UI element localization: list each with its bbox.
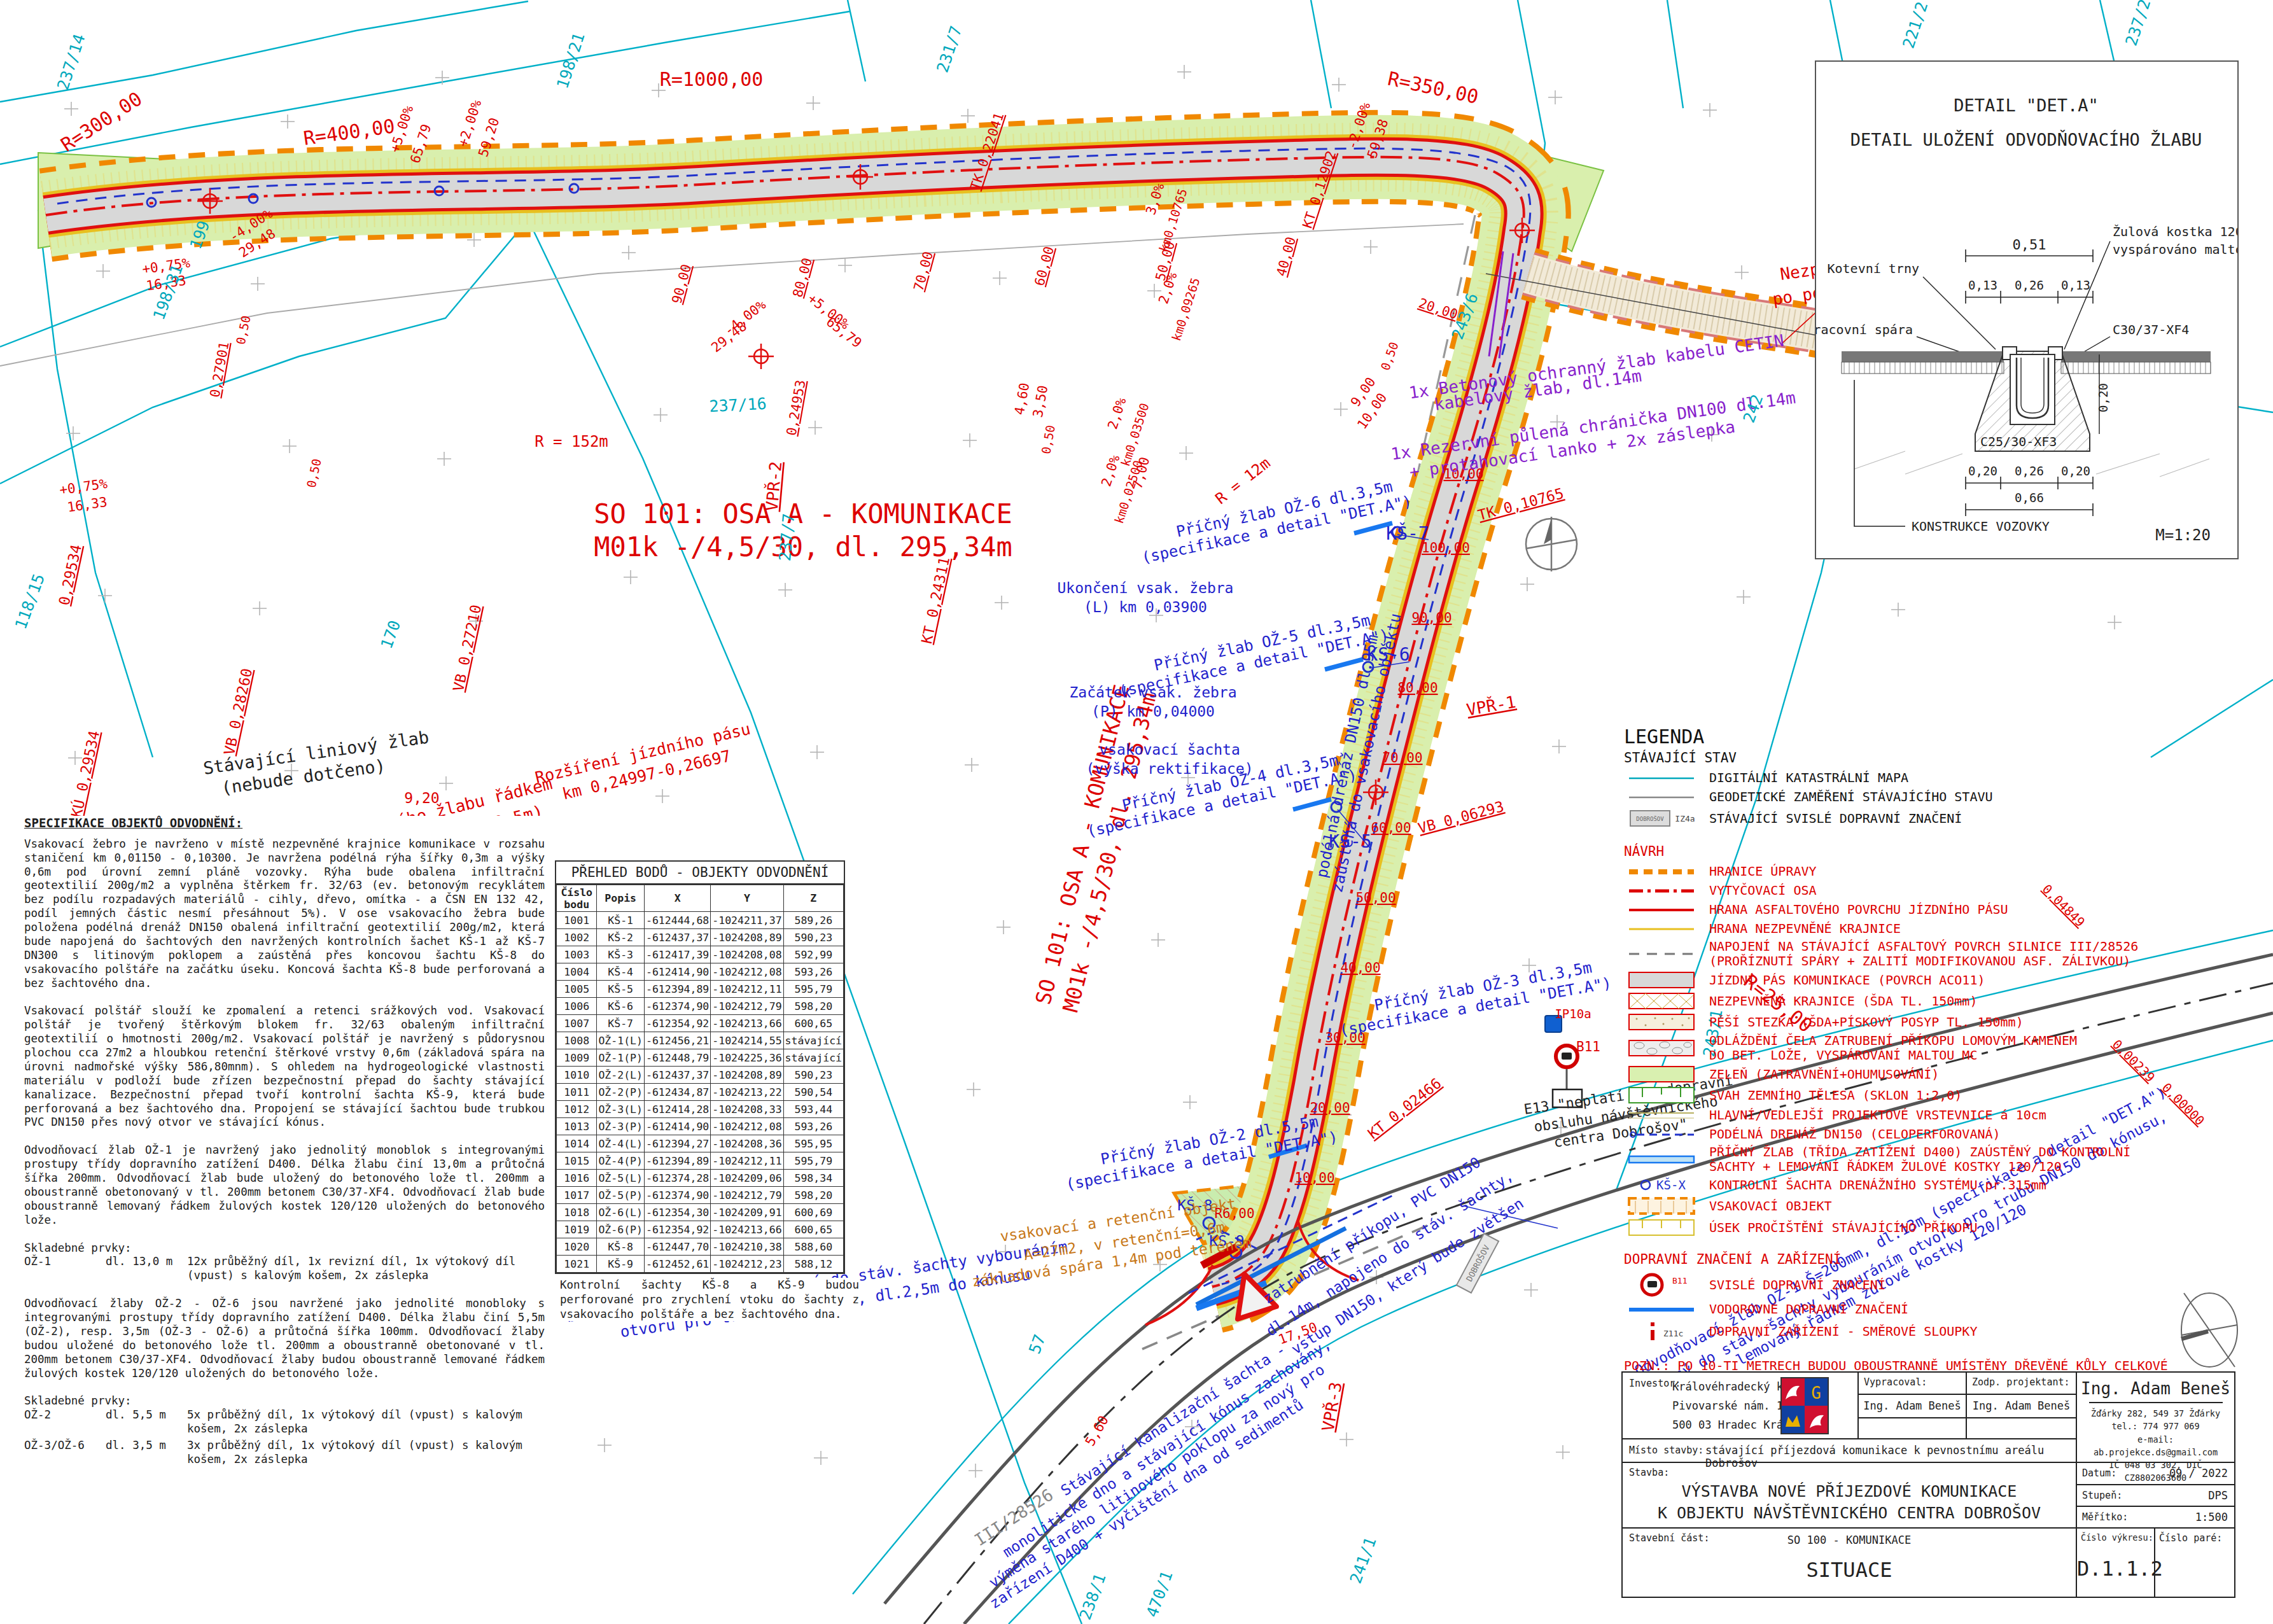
legend-item-label: VODOROVNÉ DOPRAVNÍ ZNAČENÍ xyxy=(1709,1302,1908,1317)
legend-item-label: KONTROLNÍ ŠACHTA DRENÁŽNÍHO SYSTÉMU pr.3… xyxy=(1709,1178,2046,1193)
table-cell: -1024213,66 xyxy=(711,1221,783,1238)
survey-cross xyxy=(1364,240,1378,254)
survey-cross xyxy=(598,1438,612,1452)
points-table-note: Kontrolní šachty KŠ-8 a KŠ-9 budou perfo… xyxy=(560,1278,859,1321)
legend-item: B11SVISLÉ DOPRAVNÍ ZNAČENÍ xyxy=(1624,1271,2268,1299)
annotation-text: (L) km 0,03900 xyxy=(1084,599,1207,615)
table-row: 1015OŽ-4(P)-612394,89-1024212,11595,79 xyxy=(557,1152,844,1170)
table-cell: 600,69 xyxy=(783,1204,843,1221)
table-cell: 1006 xyxy=(557,998,597,1015)
table-cell: -1024208,89 xyxy=(711,1067,783,1084)
survey-cross xyxy=(1548,90,1562,104)
table-cell: -612374,90 xyxy=(644,998,710,1015)
annotation-text: vsakovací šachta xyxy=(1099,741,1240,758)
survey-cross xyxy=(1332,78,1346,92)
cyan-line-icon xyxy=(1624,770,1699,787)
svg-text:Z11c: Z11c xyxy=(1663,1329,1683,1338)
survey-cross xyxy=(1737,590,1751,604)
survey-cross xyxy=(1520,577,1534,591)
annotation-text: VPŘ-3 xyxy=(1318,1380,1346,1432)
legend-item: HRANA NEZPEVNĚNÉ KRAJNICE xyxy=(1624,920,2268,937)
blue-channel-icon xyxy=(1624,1151,1699,1168)
label-zulova-1: Žulová kostka 120/120, xyxy=(2113,224,2237,239)
table-cell: -612444,68 xyxy=(644,912,710,929)
cislo-value: D.1.1.2 xyxy=(2077,1557,2154,1581)
table-header: Z xyxy=(783,885,843,912)
annotation-text: VB 0,27210 xyxy=(450,603,484,693)
dim-b026: 0,26 xyxy=(2015,464,2044,478)
dim-b020a: 0,20 xyxy=(1968,464,1997,478)
annotation-text: 80,00 xyxy=(790,256,815,299)
coat-of-arms: G xyxy=(1780,1377,1829,1434)
survey-cross xyxy=(1177,65,1191,79)
survey-cross xyxy=(814,1451,828,1465)
stavba-line1: VÝSTAVBA NOVÉ PŘÍJEZDOVÉ KOMUNIKACE xyxy=(1623,1481,2076,1502)
legend-item: PĚŠÍ STEZKA (ŠDA+PÍSKOVÝ POSYP TL. 150mm… xyxy=(1624,1012,2268,1032)
table-cell: 1013 xyxy=(557,1118,597,1135)
table-row: 1001KŠ-1-612444,68-1024211,37589,26 xyxy=(557,912,844,929)
survey-cross xyxy=(1552,739,1566,753)
dim-b066: 0,66 xyxy=(2015,491,2044,505)
annotation-text: 0,50 xyxy=(304,458,324,489)
table-cell: 590,23 xyxy=(783,1067,843,1084)
table-cell: -612434,87 xyxy=(644,1084,710,1101)
svg-text:IZ4a: IZ4a xyxy=(1675,814,1695,823)
table-cell: 1011 xyxy=(557,1084,597,1101)
legend-item: ÚSEK PROČIŠTĚNÍ STÁVAJÍCÍHO PŘÍKOPU xyxy=(1624,1218,2268,1237)
table-header: Číslo bodu xyxy=(557,885,597,912)
annotation-text: R=300,00 xyxy=(57,87,146,156)
annotation-text: R = 152m xyxy=(535,433,608,451)
spec-paragraph: Vsakovací žebro je navrženo v místě nezp… xyxy=(24,837,545,991)
table-cell: -612448,79 xyxy=(644,1049,710,1067)
legend-item-label: HRANA ASFALTOVÉHO POVRCHU JÍZDNÍHO PÁSU xyxy=(1709,902,2008,917)
annotation-text: 237/14 xyxy=(53,32,88,92)
table-cell: -1024211,37 xyxy=(711,912,783,929)
vypracoval-value: Ing. Adam Beneš xyxy=(1859,1399,1966,1412)
survey-cross xyxy=(1339,1432,1353,1446)
survey-cross xyxy=(1183,1095,1197,1109)
legend-title: LEGENDA xyxy=(1624,725,2268,748)
annotation-text: IP10a xyxy=(1555,1007,1591,1021)
legend-item-label: DOPRAVNÍ ZAŘÍZENÍ - SMĚROVÉ SLOUPKY xyxy=(1709,1324,1977,1339)
thin-lines-icon xyxy=(1624,1107,1699,1124)
annotation-text: SO 101: OSA A - KOMUNIKACE xyxy=(594,498,1012,529)
table-cell: KŠ-1 xyxy=(597,912,645,929)
dim-013a: 0,13 xyxy=(1968,278,1997,292)
annotation-text: 237/16 xyxy=(709,395,767,416)
legend-item: VSAKOVACÍ OBJEKT xyxy=(1624,1196,2268,1216)
orange-dash-icon xyxy=(1624,864,1699,880)
table-cell: 600,65 xyxy=(783,1221,843,1238)
pare-cell: Číslo paré: xyxy=(2154,1527,2234,1597)
legend-item: Z11cDOPRAVNÍ ZAŘÍZENÍ - SMĚROVÉ SLOUPKY xyxy=(1624,1320,2268,1343)
survey-cross xyxy=(1891,603,1905,617)
table-cell: -1024208,36 xyxy=(711,1135,783,1152)
legend-item-label: GEODETICKÉ ZAMĚŘENÍ STÁVAJÍCÍHO STAVU xyxy=(1709,790,1993,804)
table-cell: -612417,39 xyxy=(644,946,710,963)
table-cell: 1018 xyxy=(557,1204,597,1221)
table-row: 1021KŠ-9-612452,61-1024212,23588,12 xyxy=(557,1256,844,1273)
table-cell: 1021 xyxy=(557,1256,597,1273)
table-cell: -612354,92 xyxy=(644,1221,710,1238)
spec-subheading: Skladebné prvky: xyxy=(24,1394,545,1408)
dim-020v: 0,20 xyxy=(2096,383,2110,412)
table-cell: KŠ-5 xyxy=(597,981,645,998)
survey-cross xyxy=(1524,1283,1538,1297)
svg-text:KŠ-X: KŠ-X xyxy=(1656,1177,1686,1192)
annotation-text: 57 xyxy=(1025,1332,1049,1356)
table-cell: 593,26 xyxy=(783,1118,843,1135)
table-cell: KŠ-9 xyxy=(597,1256,645,1273)
table-row: 1009OŽ-1(P)-612448,79-1024225,36stávajíc… xyxy=(557,1049,844,1067)
table-cell: -612394,27 xyxy=(644,1135,710,1152)
survey-cross xyxy=(1703,103,1717,117)
spec-subheading: Skladebné prvky: xyxy=(24,1242,545,1256)
meritko-label: Měřítko: xyxy=(2082,1511,2128,1523)
stavba-cell: Stavba: VÝSTAVBA NOVÉ PŘÍJEZDOVÉ KOMUNIK… xyxy=(1623,1462,2076,1527)
spec-component-row: OŽ-1dl. 13,0 m12x průběžný díl, 1x reviz… xyxy=(24,1255,545,1283)
table-cell: OŽ-1(P) xyxy=(597,1049,645,1067)
cast-value: SO 100 - KOMUNIKACE xyxy=(1623,1534,2076,1546)
survey-cross xyxy=(961,109,975,123)
zodp-cell: Zodp. projektant: Ing. Adam Beneš xyxy=(1966,1373,2076,1438)
legend-item: KŠ-XKONTROLNÍ ŠACHTA DRENÁŽNÍHO SYSTÉMU … xyxy=(1624,1176,2268,1194)
survey-cross xyxy=(1556,1445,1570,1459)
annotation-text: 80,00 xyxy=(1397,680,1437,696)
table-row: 1014OŽ-4(L)-612394,27-1024208,36595,95 xyxy=(557,1135,844,1152)
table-cell: -1024212,08 xyxy=(711,1118,783,1135)
stavba-label: Stavba: xyxy=(1629,1467,1669,1478)
table-row: 1019OŽ-6(P)-612354,92-1024213,66600,65 xyxy=(557,1221,844,1238)
survey-cross xyxy=(437,452,451,466)
annotation-text: 0,50 xyxy=(1039,424,1058,455)
svg-text:DOBROŠOV: DOBROŠOV xyxy=(1636,815,1664,822)
table-cell: -612354,92 xyxy=(644,1015,710,1032)
detail-title: DETAIL "DET.A" xyxy=(1954,95,2099,115)
legend-item-label: ODLÁŽDĚNÍ ČELA ZATRUBENÍ PŘÍKOPU LOMOVÝM… xyxy=(1709,1033,2077,1063)
legend-item: NEZPEVNĚNÁ KRAJNICE (ŠDA TL. 150mm) xyxy=(1624,991,2268,1011)
annotation-text: B11 xyxy=(1576,1039,1600,1054)
table-cell: -612452,61 xyxy=(644,1256,710,1273)
table-cell: -1024212,23 xyxy=(711,1256,783,1273)
annotation-text: 237/2 xyxy=(2122,0,2154,48)
vykres-nazev: SITUACE xyxy=(1623,1558,2076,1582)
table-cell: 593,26 xyxy=(783,963,843,981)
table-row: 1004KŠ-4-612414,90-1024212,08593,26 xyxy=(557,963,844,981)
table-cell: -1024209,91 xyxy=(711,1204,783,1221)
annotation-text: 5,60 xyxy=(1082,1413,1112,1449)
legend-item: DIGITÁLNÍ KATASTRÁLNÍ MAPA xyxy=(1624,769,2268,787)
table-cell: -1024214,55 xyxy=(711,1032,783,1049)
alignment-markers xyxy=(197,164,1535,805)
post-z11c-icon: Z11c xyxy=(1624,1320,1699,1343)
annotation-text: VPŘ-1 xyxy=(1465,692,1517,720)
annotation-text: 170 xyxy=(377,618,405,651)
table-cell: -1024225,36 xyxy=(711,1049,783,1067)
table-row: 1008OŽ-1(L)-612456,21-1024214,55stávajíc… xyxy=(557,1032,844,1049)
table-cell: -1024213,66 xyxy=(711,1015,783,1032)
table-cell: -612437,37 xyxy=(644,1067,710,1084)
meritko-cell: Měřítko: 1:500 xyxy=(2076,1506,2234,1527)
table-row: 1012OŽ-3(L)-612414,28-1024208,33593,44 xyxy=(557,1101,844,1118)
annotation-text: 241/1 xyxy=(1346,1535,1380,1586)
survey-cross xyxy=(655,789,669,803)
investor-cell: Investor: Královéhradecký kraj Pivovarsk… xyxy=(1623,1373,1857,1438)
table-cell: OŽ-4(L) xyxy=(597,1135,645,1152)
cislo-cell: Číslo výkresu: D.1.1.2 xyxy=(2076,1527,2154,1597)
table-cell: stávající xyxy=(783,1049,843,1067)
spec-paragraph: Vsakovací polštář slouží ke zpomalení a … xyxy=(24,1004,545,1130)
table-cell: OŽ-1(L) xyxy=(597,1032,645,1049)
table-cell: -612437,37 xyxy=(644,929,710,946)
table-cell: OŽ-4(P) xyxy=(597,1152,645,1170)
table-cell: -612374,90 xyxy=(644,1187,710,1204)
table-cell: 598,20 xyxy=(783,1187,843,1204)
annotation-text: 231/7 xyxy=(933,24,965,75)
swatch-cross-icon xyxy=(1624,991,1699,1011)
legend-item-label: SVISLÉ DOPRAVNÍ ZNAČENÍ xyxy=(1709,1278,1885,1292)
table-cell: -612394,89 xyxy=(644,981,710,998)
legend-item-label: HLAVNÍ/VEDLEJŠÍ PROJEKTOVÉ VRSTEVNICE á … xyxy=(1709,1108,2046,1123)
table-cell: stávající xyxy=(783,1032,843,1049)
table-cell: -1024208,08 xyxy=(711,946,783,963)
table-row: 1005KŠ-5-612394,89-1024212,11595,79 xyxy=(557,981,844,998)
annotation-text: R=350,00 xyxy=(1386,67,1481,108)
survey-cross xyxy=(808,421,822,435)
legend-item-label: STÁVAJÍCÍ SVISLÉ DOPRAVNÍ ZNAČENÍ xyxy=(1709,811,1962,826)
table-cell: 593,44 xyxy=(783,1101,843,1118)
pare-label: Číslo paré: xyxy=(2159,1532,2222,1544)
legend: LEGENDA STÁVAJÍCÍ STAV DIGITÁLNÍ KATASTR… xyxy=(1624,725,2268,1431)
red-line-icon xyxy=(1624,902,1699,918)
gray-dash-icon xyxy=(1624,946,1699,962)
legend-item: SVAH ZEMNÍHO TĚLESA (SKLON 1:2,0) xyxy=(1624,1086,2268,1105)
legend-item: HRANA ASFALTOVÉHO POVRCHU JÍZDNÍHO PÁSU xyxy=(1624,901,2268,918)
annotation-text: KT 0,24311 xyxy=(918,556,953,645)
survey-cross xyxy=(64,102,78,116)
annotation-text: 60,00 xyxy=(1032,245,1057,288)
legend-item: GEODETICKÉ ZAMĚŘENÍ STÁVAJÍCÍHO STAVU xyxy=(1624,788,2268,806)
table-row: 1020KŠ-8-612447,70-1024210,38588,60 xyxy=(557,1238,844,1256)
annotation-text: 2,0% xyxy=(1105,396,1130,431)
legend-item: VYTYČOVACÍ OSA xyxy=(1624,882,2268,899)
table-cell: -1024212,79 xyxy=(711,1187,783,1204)
legend-signs-head: DOPRAVNÍ ZNAČENÍ A ZAŘÍZENÍ xyxy=(1624,1252,2268,1267)
survey-cross xyxy=(993,271,1007,285)
legend-item-label: PŘÍČNÝ ŽLAB (TŘÍDA ZATÍŽENÍ D400) ZAÚSTĚ… xyxy=(1709,1145,2130,1174)
detail-scale: M=1:20 xyxy=(2155,526,2211,544)
dim-051: 0,51 xyxy=(2013,237,2046,253)
svg-text:G: G xyxy=(1811,1383,1821,1403)
survey-cross xyxy=(98,589,112,603)
table-cell: OŽ-2(L) xyxy=(597,1067,645,1084)
annotation-text: M01k -/4,5/30, dl. 295,34m xyxy=(594,531,1012,563)
firm-cell: Ing. Adam Beneš Žďárky 282, 549 37 Žďárk… xyxy=(2076,1373,2234,1462)
table-cell: -612394,89 xyxy=(644,1152,710,1170)
legend-item: PŘÍČNÝ ŽLAB (TŘÍDA ZATÍŽENÍ D400) ZAÚSTĚ… xyxy=(1624,1145,2268,1174)
table-header: X xyxy=(644,885,710,912)
table-cell: KŠ-4 xyxy=(597,963,645,981)
legend-item: DOBROŠOVIZ4aSTÁVAJÍCÍ SVISLÉ DOPRAVNÍ ZN… xyxy=(1624,808,2268,829)
spec-text-block: SPECIFIKACE OBJEKTŮ ODVODNĚNÍ: Vsakovací… xyxy=(24,816,545,1481)
legend-item: HRANICE ÚPRAVY xyxy=(1624,863,2268,880)
legend-item: VODOROVNÉ DOPRAVNÍ ZNAČENÍ xyxy=(1624,1301,2268,1318)
table-cell: -612374,28 xyxy=(644,1170,710,1187)
annotation-text: výměna starého litinového poklopu za nov… xyxy=(986,1361,1327,1591)
survey-cross xyxy=(251,277,265,291)
legend-item: ZELEŇ (ZATRAVNĚNÍ+OHUMUSOVÁNÍ) xyxy=(1624,1065,2268,1084)
survey-cross xyxy=(963,433,977,447)
table-cell: -1024212,79 xyxy=(711,998,783,1015)
table-row: 1013OŽ-3(P)-612414,90-1024212,08593,26 xyxy=(557,1118,844,1135)
annotation-text: 20,00 xyxy=(1416,295,1460,322)
spec-component-row: OŽ-2dl. 5,5 m5x průběžný díl, 1x výtokov… xyxy=(24,1408,545,1436)
table-cell: -612414,28 xyxy=(644,1101,710,1118)
survey-cross xyxy=(253,601,267,615)
annotation-text: KT 0,02466 xyxy=(1365,1075,1444,1142)
legend-item: HLAVNÍ/VEDLEJŠÍ PROJEKTOVÉ VRSTEVNICE á … xyxy=(1624,1107,2268,1124)
table-cell: KŠ-6 xyxy=(597,998,645,1015)
survey-cross xyxy=(1151,933,1165,947)
survey-cross xyxy=(969,1464,983,1478)
annotation-text: Začátek vsak. žebra xyxy=(1069,684,1236,701)
table-cell: -1024208,33 xyxy=(711,1101,783,1118)
legend-item: ODLÁŽDĚNÍ ČELA ZATRUBENÍ PŘÍKOPU LOMOVÝM… xyxy=(1624,1033,2268,1063)
datum-cell: Datum: 09 / 2022 xyxy=(2076,1462,2234,1484)
gray-line-icon xyxy=(1624,789,1699,806)
survey-cross xyxy=(654,408,668,422)
survey-cross xyxy=(806,96,820,110)
detail-panel: DETAIL "DET.A" DETAIL ULOŽENÍ ODVODŇOVAC… xyxy=(1815,60,2239,559)
survey-cross xyxy=(1179,446,1193,460)
annotation-text: 90,00 xyxy=(1411,610,1451,626)
stupen-value: DPS xyxy=(2208,1489,2228,1502)
table-cell: 600,65 xyxy=(783,1015,843,1032)
legend-navrh-head: NÁVRH xyxy=(1624,844,2268,859)
survey-cross xyxy=(622,246,636,260)
annotation-text: 40,00 xyxy=(1273,235,1299,278)
annotation-text: 3,50 xyxy=(1030,384,1051,419)
detail-subtitle: DETAIL ULOŽENÍ ODVODŇOVACÍHO ŽLABU xyxy=(1850,130,2202,150)
stavba-line2: K OBJEKTU NÁVŠTĚVNICKÉHO CENTRA DOBROŠOV xyxy=(1623,1502,2076,1524)
table-cell: 1014 xyxy=(557,1135,597,1152)
survey-cross xyxy=(810,745,824,759)
table-cell: OŽ-5(L) xyxy=(597,1170,645,1187)
zodp-label: Zodp. projektant: xyxy=(1972,1376,2070,1388)
annotation-text: 238/1 xyxy=(1076,1571,1110,1623)
legend-item-label: PODÉLNÁ DRENÁŽ DN150 (CELOPERFOROVANÁ) xyxy=(1709,1127,2001,1142)
table-cell: -1024208,89 xyxy=(711,929,783,946)
table-cell: OŽ-6(P) xyxy=(597,1221,645,1238)
swatch-comb-icon xyxy=(1624,1218,1699,1237)
table-cell: 588,12 xyxy=(783,1256,843,1273)
swatch-slope-icon xyxy=(1624,1086,1699,1105)
table-cell: 588,60 xyxy=(783,1238,843,1256)
table-cell: -1024213,22 xyxy=(711,1084,783,1101)
table-cell: -1024210,38 xyxy=(711,1238,783,1256)
table-cell: 1015 xyxy=(557,1152,597,1170)
table-cell: 1009 xyxy=(557,1049,597,1067)
table-cell: -1024209,06 xyxy=(711,1170,783,1187)
annotation-text: 118/15 xyxy=(11,571,48,632)
vypracoval-cell: Vypracoval: Ing. Adam Beneš xyxy=(1857,1373,1966,1438)
annotation-text: KÚ 0,29534 xyxy=(67,729,102,819)
table-cell: 1003 xyxy=(557,946,597,963)
sign-b11-icon: B11 xyxy=(1624,1271,1699,1299)
annotation-text: R=1000,00 xyxy=(660,68,764,90)
table-cell: 590,23 xyxy=(783,929,843,946)
firm-tel: tel.: 774 977 069 xyxy=(2077,1420,2234,1432)
dim-013b: 0,13 xyxy=(2061,278,2090,292)
annotation-text: (výška rektifikace) xyxy=(1086,760,1253,777)
label-kotevni-trny: Kotevní trny xyxy=(1828,261,1920,276)
table-row: 1007KŠ-7-612354,92-1024213,66600,65 xyxy=(557,1015,844,1032)
survey-cross xyxy=(997,920,1011,934)
legend-item-label: HRANICE ÚPRAVY xyxy=(1709,864,1817,879)
stupen-label: Stupeň: xyxy=(2082,1490,2122,1501)
table-cell: 1020 xyxy=(557,1238,597,1256)
table-header: Y xyxy=(711,885,783,912)
survey-cross xyxy=(1735,265,1749,279)
table-row: 1002KŠ-2-612437,37-1024208,89590,23 xyxy=(557,929,844,946)
survey-cross xyxy=(778,583,792,597)
blue-thick-icon xyxy=(1624,1301,1699,1318)
label-pracovni-spara: Pracovní spára xyxy=(1816,322,1913,337)
swatch-stone-icon xyxy=(1624,1039,1699,1058)
survey-cross xyxy=(96,264,110,278)
annotation-text: R = 12m xyxy=(1212,454,1274,508)
legend-item-label: ZELEŇ (ZATRAVNĚNÍ+OHUMUSOVÁNÍ) xyxy=(1709,1067,1939,1082)
table-cell: OŽ-6(L) xyxy=(597,1204,645,1221)
table-cell: 1001 xyxy=(557,912,597,929)
survey-cross xyxy=(439,776,453,790)
survey-cross xyxy=(838,258,852,272)
label-zulova-2: vyspárováno maltou MC xyxy=(2113,242,2237,257)
spec-paragraph: Odvodňovací žlaby OŽ-2 - OŽ-6 jsou navrž… xyxy=(24,1297,545,1380)
table-cell: KŠ-8 xyxy=(597,1238,645,1256)
label-c3037: C30/37-XF4 xyxy=(2113,322,2189,337)
label-c2530: C25/30-XF3 xyxy=(1980,434,2057,449)
legend-item-label: SVAH ZEMNÍHO TĚLESA (SKLON 1:2,0) xyxy=(1709,1088,1962,1103)
annotation-text: Ukončení vsak. žebra xyxy=(1058,580,1234,596)
table-cell: 1016 xyxy=(557,1170,597,1187)
north-compass xyxy=(1526,517,1577,571)
table-cell: 1005 xyxy=(557,981,597,998)
table-cell: 1002 xyxy=(557,929,597,946)
table-cell: 598,20 xyxy=(783,998,843,1015)
table-cell: 598,34 xyxy=(783,1170,843,1187)
table-cell: -612447,70 xyxy=(644,1238,710,1256)
legend-existing-head: STÁVAJÍCÍ STAV xyxy=(1624,750,2268,766)
annotation-text: 70,00 xyxy=(911,250,936,293)
stupen-cell: Stupeň: DPS xyxy=(2076,1484,2234,1506)
table-cell: OŽ-3(L) xyxy=(597,1101,645,1118)
table-cell: KŠ-7 xyxy=(597,1015,645,1032)
table-row: 1018OŽ-6(L)-612354,30-1024209,91600,69 xyxy=(557,1204,844,1221)
title-block: Investor: Královéhradecký kraj Pivovarsk… xyxy=(1621,1371,2235,1598)
annotation-text: 470/1 xyxy=(1143,1569,1177,1620)
points-table-title: PŘEHLED BODŮ - OBJEKTY ODVODNĚNÍ xyxy=(556,862,844,885)
zodp-value: Ing. Adam Beneš xyxy=(1967,1399,2076,1412)
survey-cross xyxy=(995,596,1009,610)
firm-mail: e-mail: ab.projekce.ds@gmail.com xyxy=(2077,1433,2234,1459)
table-cell: -1024212,08 xyxy=(711,963,783,981)
svg-text:B11: B11 xyxy=(1672,1276,1687,1285)
firm-name: Ing. Adam Beneš xyxy=(2077,1379,2234,1398)
annotation-text: 16,33 xyxy=(66,494,108,515)
swatch-vsak-icon xyxy=(1624,1196,1699,1216)
